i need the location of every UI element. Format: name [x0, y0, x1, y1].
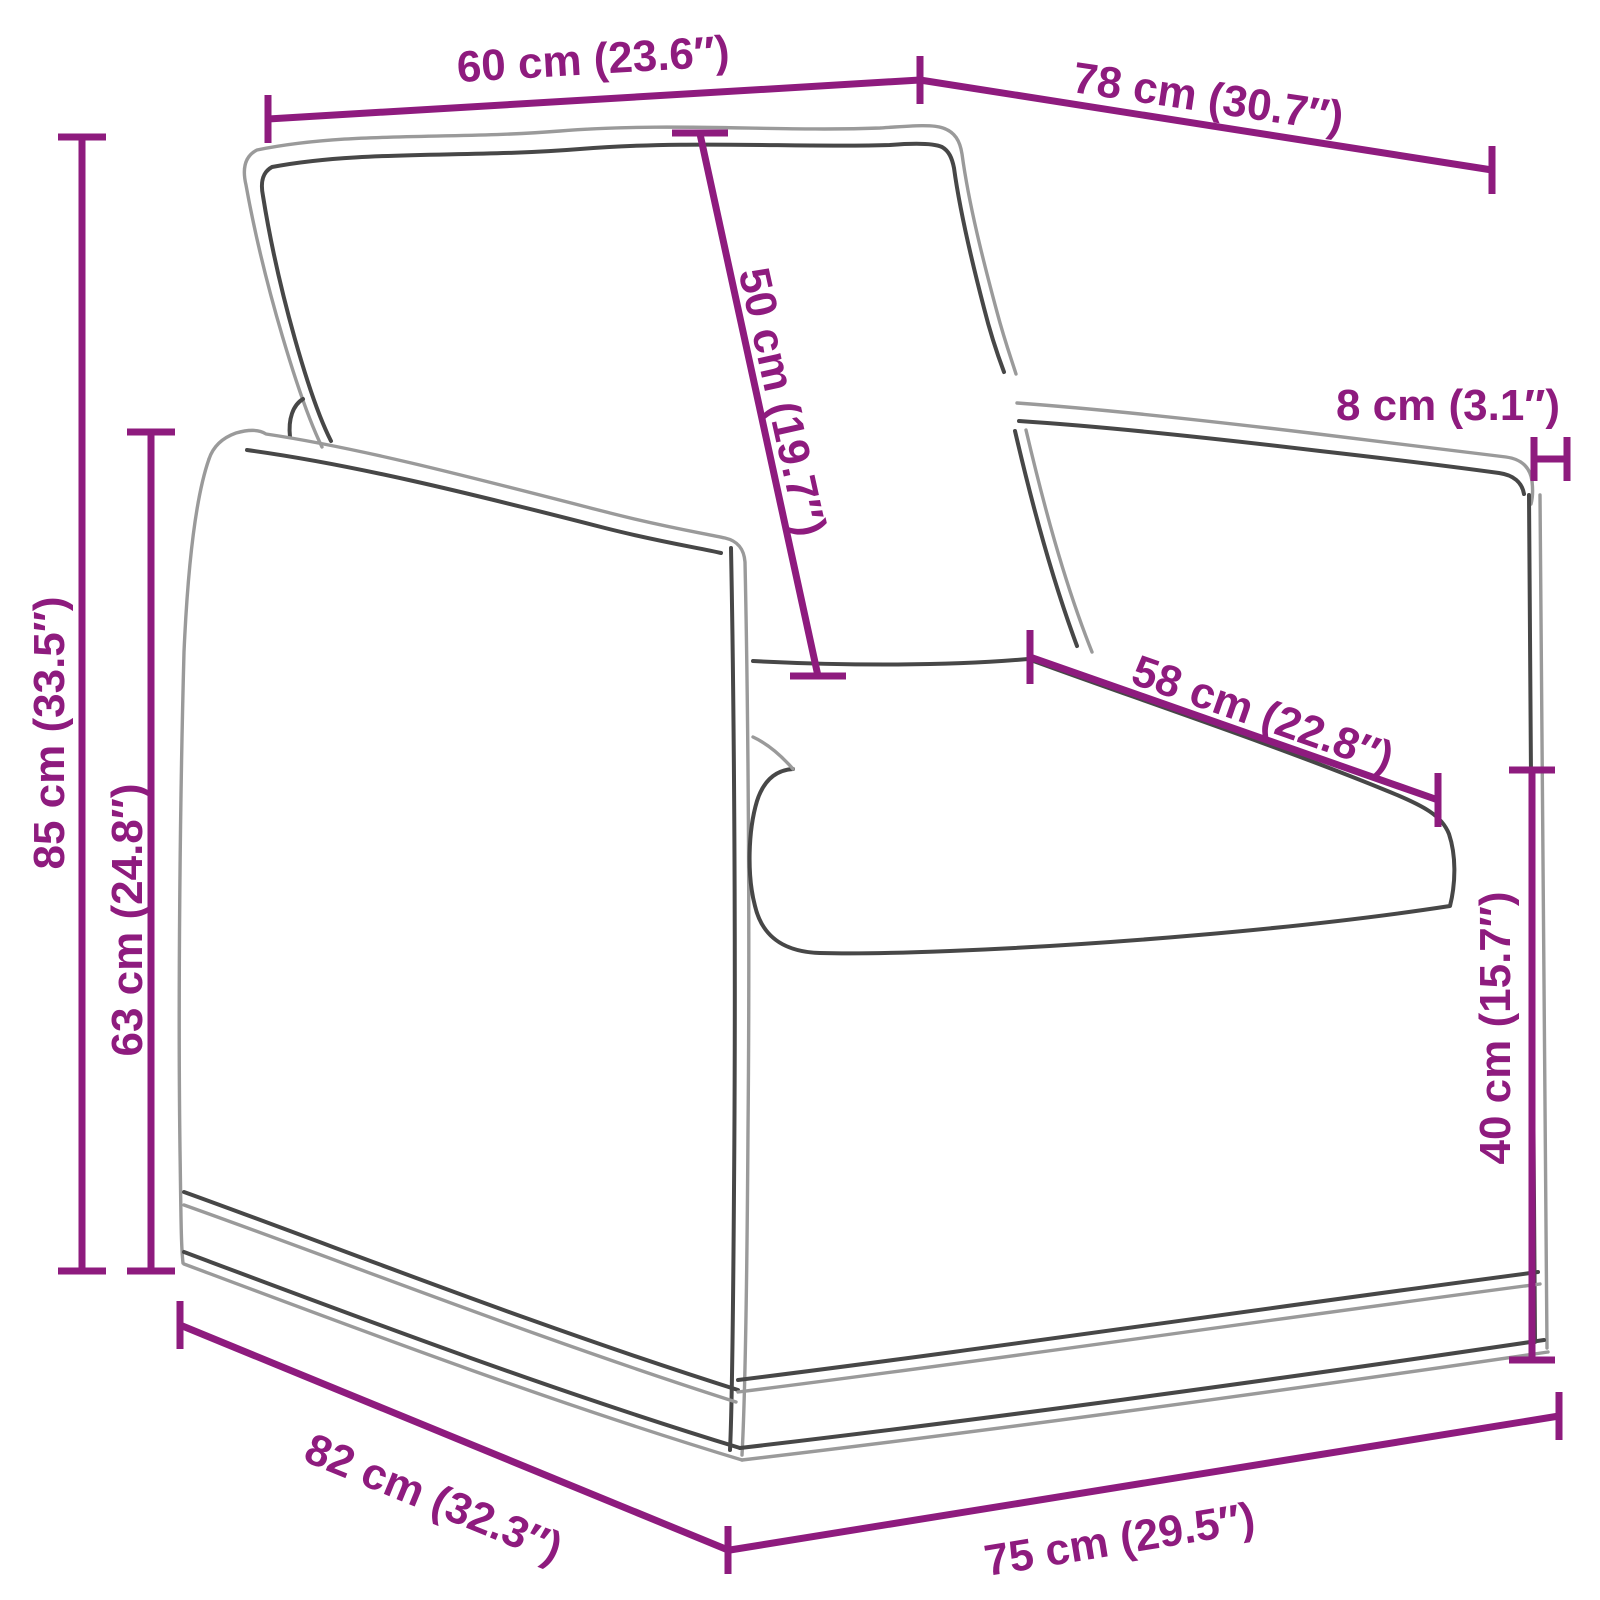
back-cushion-outline-lower — [1026, 430, 1092, 652]
dimension-base-front-width: 75 cm (29.5″) — [730, 1392, 1559, 1586]
dimension-annotations: 60 cm (23.6″) 78 cm (30.7″) 50 cm (19.7″… — [25, 27, 1567, 1586]
dimension-label-75cm: 75 cm (29.5″) — [981, 1493, 1258, 1585]
dimension-seat-depth: 58 cm (22.8″) — [1030, 630, 1438, 827]
dimension-back-cushion-height: 50 cm (19.7″) — [672, 133, 846, 676]
back-cushion-corner-arc — [290, 399, 303, 437]
dimension-label-50cm: 50 cm (19.7″) — [729, 263, 836, 540]
dimension-top-side-depth: 78 cm (30.7″) — [920, 53, 1492, 194]
back-cushion-outline — [244, 126, 1016, 447]
dimension-label-63cm: 63 cm (24.8″) — [103, 783, 152, 1056]
bottom-edge-left-upper — [184, 1252, 740, 1448]
armrest-top-piping — [1019, 421, 1524, 494]
dimension-label-60cm: 60 cm (23.6″) — [455, 27, 730, 92]
dimension-label-82cm: 82 cm (32.3″) — [298, 1424, 569, 1573]
skirt-seam-left-lower — [184, 1205, 736, 1402]
armchair-line-drawing — [179, 126, 1548, 1460]
back-cushion-piping-lower — [1015, 431, 1077, 646]
seat-cushion-outline — [750, 659, 1455, 953]
left-arm-left-edge — [179, 459, 209, 1263]
armchair-dimension-diagram: 60 cm (23.6″) 78 cm (30.7″) 50 cm (19.7″… — [0, 0, 1600, 1600]
dimension-label-40cm: 40 cm (15.7″) — [1471, 891, 1520, 1164]
dimension-overall-height: 85 cm (33.5″) — [25, 137, 106, 1271]
dimension-base-depth: 82 cm (32.3″) — [180, 1301, 728, 1574]
skirt-seam-right-upper — [738, 1272, 1538, 1380]
dimension-label-85cm: 85 cm (33.5″) — [25, 596, 74, 869]
right-side-outer-edge — [1540, 495, 1547, 1348]
dim-line-60 — [268, 80, 920, 119]
dimension-diagram-page: 60 cm (23.6″) 78 cm (30.7″) 50 cm (19.7″… — [0, 0, 1600, 1600]
left-arm-front-piping — [730, 548, 735, 1450]
back-cushion-piping — [262, 144, 1004, 441]
seat-cushion-left-seam — [753, 737, 793, 769]
dimension-top-front-width: 60 cm (23.6″) — [268, 27, 920, 143]
dimension-label-8cm: 8 cm (3.1″) — [1336, 381, 1560, 430]
skirt-seam-right-lower — [738, 1284, 1540, 1392]
bottom-edge-right-lower — [742, 1352, 1548, 1460]
dimension-label-58cm: 58 cm (22.8″) — [1126, 646, 1400, 782]
dimension-arm-height: 63 cm (24.8″) — [103, 432, 175, 1271]
bottom-edge-right-upper — [740, 1340, 1544, 1448]
seat-cushion-back-edge — [753, 659, 1028, 665]
left-arm-top-piping — [247, 450, 721, 553]
